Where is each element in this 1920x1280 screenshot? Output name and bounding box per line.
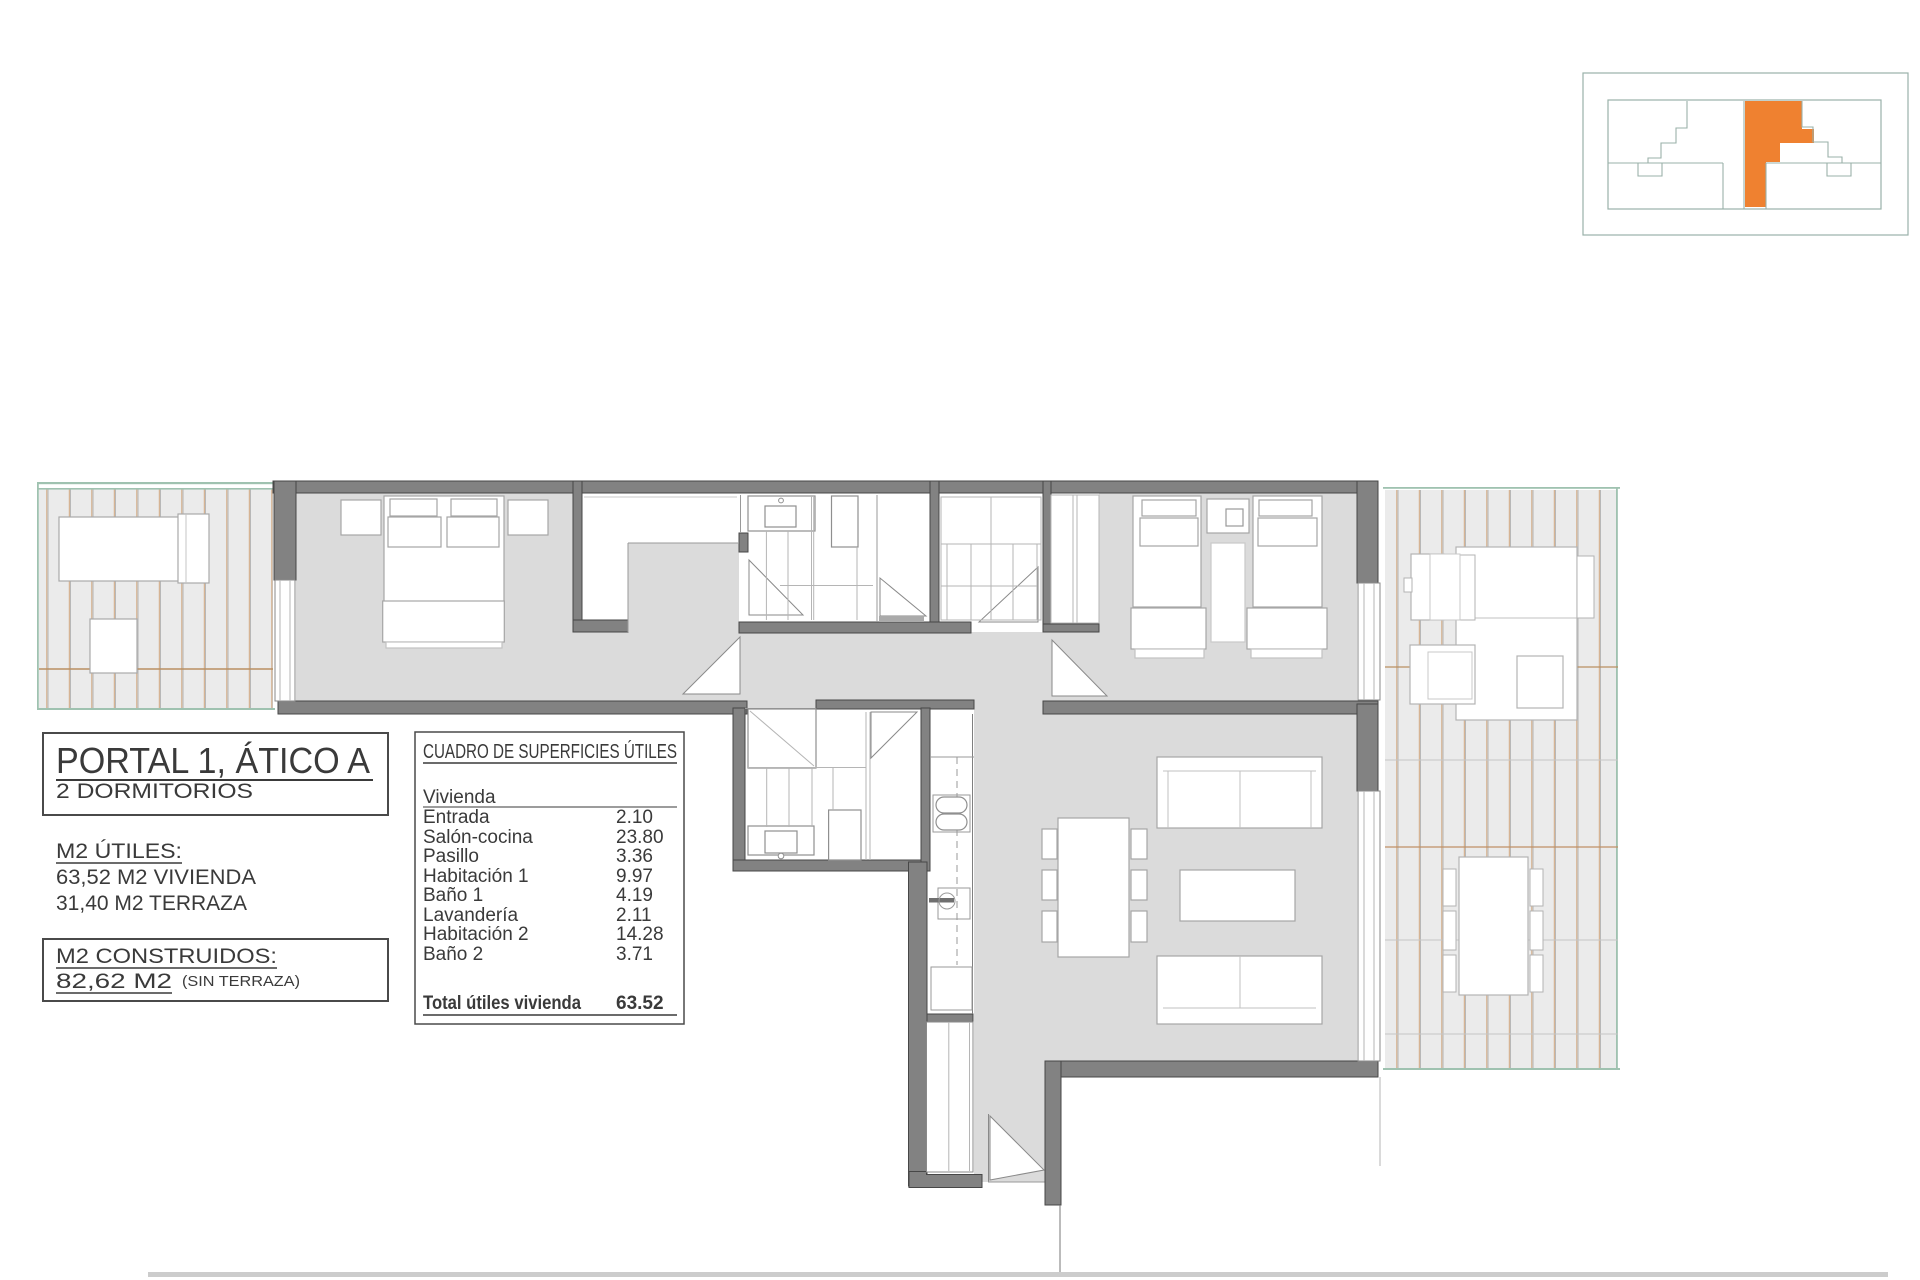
svg-text:4.19: 4.19: [616, 885, 653, 906]
svg-text:Vivienda: Vivienda: [423, 787, 496, 808]
svg-text:M2 CONSTRUIDOS:: M2 CONSTRUIDOS:: [56, 945, 277, 968]
svg-text:M2 ÚTILES:: M2 ÚTILES:: [56, 840, 182, 863]
svg-text:9.97: 9.97: [616, 866, 653, 887]
svg-text:63,52 M2 VIVIENDA: 63,52 M2 VIVIENDA: [56, 866, 256, 889]
svg-text:2 DORMITORIOS: 2 DORMITORIOS: [56, 780, 253, 803]
svg-text:2.11: 2.11: [616, 905, 652, 926]
svg-text:Salón-cocina: Salón-cocina: [423, 827, 533, 848]
svg-text:Habitación 2: Habitación 2: [423, 924, 529, 945]
svg-text:Habitación 1: Habitación 1: [423, 866, 529, 887]
svg-text:14.28: 14.28: [616, 924, 664, 945]
svg-text:82,62 M2: 82,62 M2: [56, 970, 172, 993]
svg-text:31,40 M2 TERRAZA: 31,40 M2 TERRAZA: [56, 892, 247, 915]
svg-text:Baño 1: Baño 1: [423, 885, 483, 906]
svg-text:3.36: 3.36: [616, 846, 653, 867]
svg-text:CUADRO DE SUPERFICIES ÚTILES: CUADRO DE SUPERFICIES ÚTILES: [423, 740, 677, 763]
svg-text:Baño 2: Baño 2: [423, 944, 483, 965]
svg-text:Pasillo: Pasillo: [423, 846, 479, 867]
svg-text:23.80: 23.80: [616, 827, 664, 848]
svg-text:Lavandería: Lavandería: [423, 905, 519, 926]
svg-text:63.52: 63.52: [616, 993, 664, 1014]
svg-text:2.10: 2.10: [616, 807, 653, 828]
svg-text:3.71: 3.71: [616, 944, 653, 965]
svg-text:PORTAL 1, ÁTICO A: PORTAL 1, ÁTICO A: [56, 740, 370, 781]
svg-text:(SIN TERRAZA): (SIN TERRAZA): [182, 973, 300, 990]
svg-text:Entrada: Entrada: [423, 807, 490, 828]
svg-text:Total útiles vivienda: Total útiles vivienda: [423, 993, 581, 1014]
